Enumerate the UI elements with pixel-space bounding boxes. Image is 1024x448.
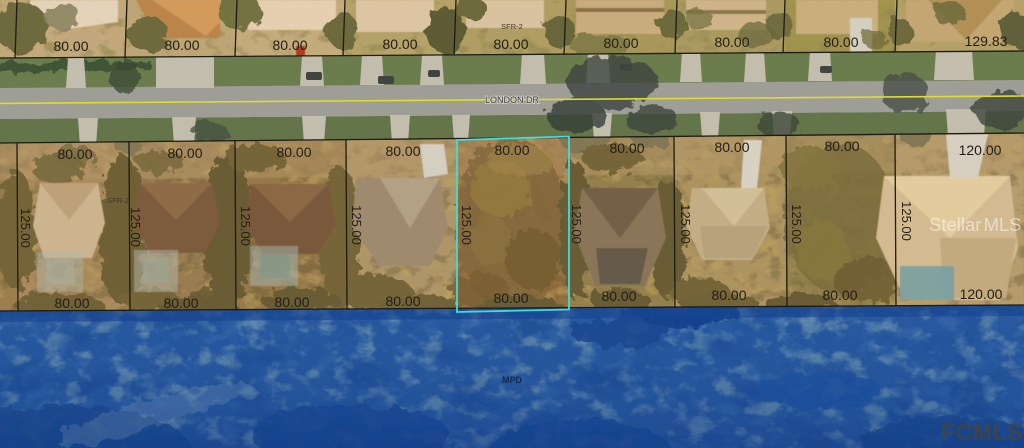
svg-text:StellarMLS: StellarMLS (929, 214, 1022, 235)
svg-text:80.00: 80.00 (823, 34, 858, 50)
svg-text:80.00: 80.00 (711, 287, 746, 303)
svg-text:80.00: 80.00 (493, 290, 528, 306)
svg-text:80.00: 80.00 (164, 37, 199, 53)
svg-text:80.00: 80.00 (276, 144, 311, 160)
svg-text:125.00: 125.00 (569, 204, 584, 244)
svg-text:80.00: 80.00 (163, 295, 198, 311)
svg-text:80.00: 80.00 (385, 143, 420, 159)
svg-text:80.00: 80.00 (603, 35, 638, 51)
svg-text:SFR-2: SFR-2 (501, 22, 523, 31)
svg-text:80.00: 80.00 (272, 37, 307, 53)
svg-text:80.00: 80.00 (274, 294, 309, 310)
svg-text:LONDON DR: LONDON DR (485, 95, 540, 105)
svg-text:80.00: 80.00 (494, 142, 529, 158)
svg-text:80.00: 80.00 (493, 36, 528, 52)
svg-text:125.00: 125.00 (238, 206, 253, 246)
svg-text:FCMLS: FCMLS (941, 419, 1023, 445)
svg-text:80.00: 80.00 (822, 287, 857, 303)
svg-text:SFR-2: SFR-2 (107, 196, 129, 205)
svg-text:125.00: 125.00 (349, 205, 364, 245)
svg-text:125.00: 125.00 (789, 204, 804, 244)
svg-text:80.00: 80.00 (54, 295, 89, 311)
svg-text:80.00: 80.00 (714, 139, 749, 155)
svg-text:120.00: 120.00 (959, 142, 1002, 158)
svg-text:120.00: 120.00 (960, 286, 1003, 302)
svg-text:125.00: 125.00 (678, 204, 693, 244)
svg-text:80.00: 80.00 (609, 140, 644, 156)
svg-text:125.00: 125.00 (899, 201, 914, 241)
svg-text:80.00: 80.00 (382, 36, 417, 52)
svg-text:80.00: 80.00 (53, 38, 88, 54)
svg-text:80.00: 80.00 (385, 293, 420, 309)
svg-text:125.00: 125.00 (459, 205, 474, 245)
svg-text:125.00: 125.00 (18, 208, 33, 248)
svg-text:80.00: 80.00 (601, 288, 636, 304)
svg-text:129.83: 129.83 (965, 33, 1008, 49)
svg-text:80.00: 80.00 (57, 146, 92, 162)
svg-text:80.00: 80.00 (714, 34, 749, 50)
svg-text:125.00: 125.00 (128, 207, 143, 247)
svg-text:MPD: MPD (502, 375, 523, 385)
svg-text:80.00: 80.00 (824, 138, 859, 154)
svg-text:80.00: 80.00 (167, 145, 202, 161)
